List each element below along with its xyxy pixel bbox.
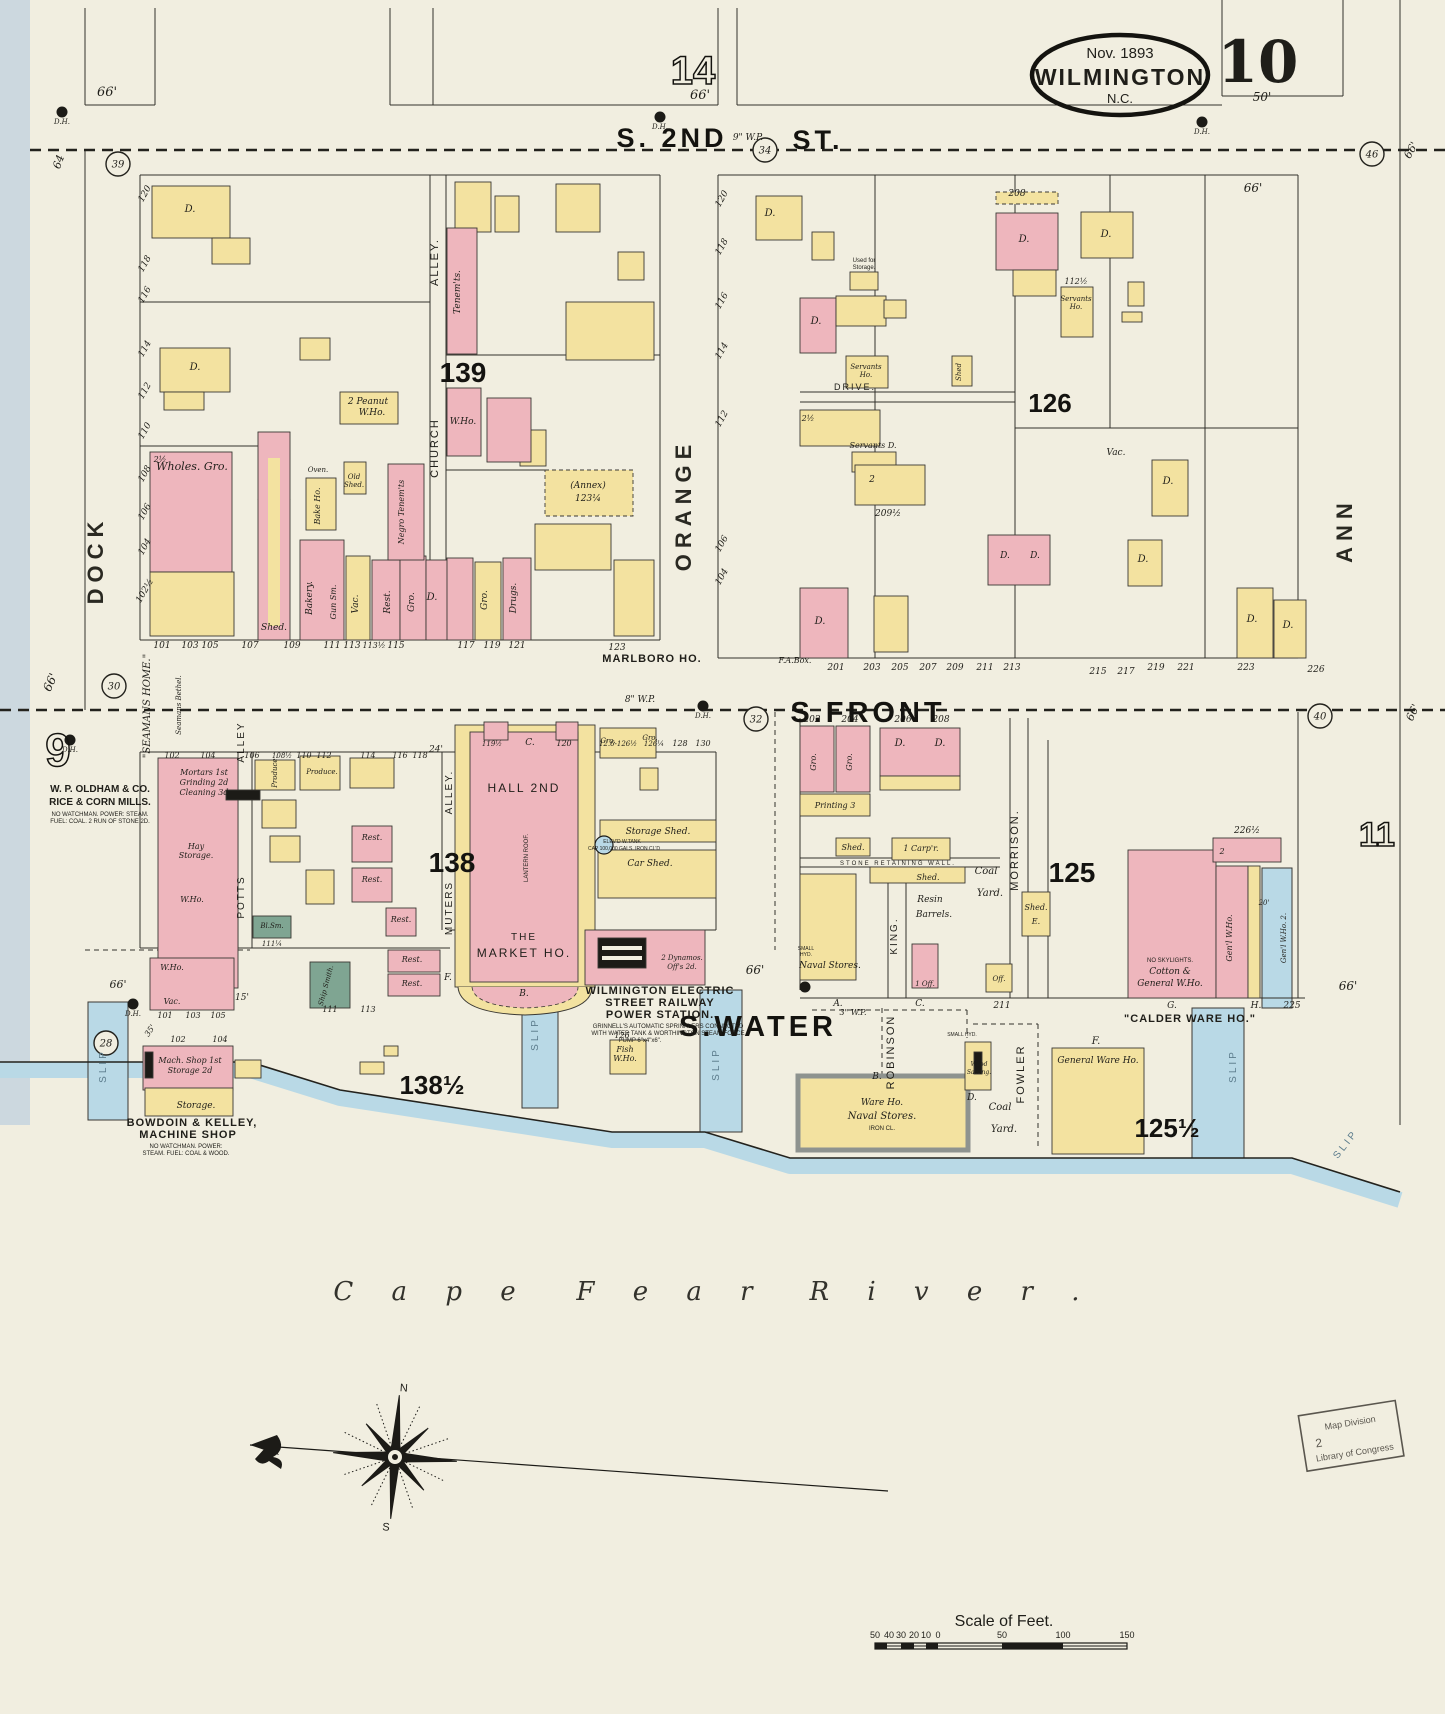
map-label: 206 [893, 715, 911, 725]
map-label: NO WATCHMAN. POWER: STEAM. [52, 812, 149, 818]
map-label: Yard. [977, 888, 1003, 899]
building-footprint [640, 768, 658, 790]
scale-tick-label: 20 [909, 1630, 919, 1640]
map-label: 102 [170, 1035, 185, 1044]
map-label: 11 [1359, 816, 1395, 854]
map-label: Off's 2d. [667, 963, 697, 971]
map-label: 211 [992, 1001, 1010, 1011]
map-label: 226½ [1233, 825, 1260, 836]
map-label: D. [184, 204, 196, 215]
map-label: ELEV'D W.TANK [603, 839, 641, 845]
map-label: SLIP [1228, 1049, 1239, 1083]
map-label: BOWDOIN & KELLEY, [127, 1117, 258, 1129]
map-label: Gun Sm. [329, 585, 338, 620]
map-canvas: S. 2ND ST. S.FRONT S.WATER DOCK ORANGE A… [0, 0, 1445, 1714]
building-footprint [614, 560, 654, 636]
map-label: 116 [392, 751, 407, 760]
map-label: Storage 2d [168, 1066, 213, 1075]
map-label: SLIP [98, 1049, 109, 1083]
map-label: 112 [316, 751, 331, 760]
building-footprint [150, 572, 234, 636]
map-label: Gro. [600, 737, 615, 745]
map-label: 125½ [1134, 1113, 1199, 1143]
building-footprint [268, 458, 280, 626]
map-label: 3" W.P. [840, 1008, 867, 1017]
map-label: ALLEY. [429, 238, 441, 286]
street-label-orange: ORANGE [671, 439, 696, 572]
map-label: D.H. [1193, 128, 1210, 136]
map-label: 202 [802, 715, 820, 725]
circled-number-text: 32 [750, 715, 763, 726]
building-footprint [535, 524, 611, 570]
map-label: 113 [360, 1005, 375, 1014]
map-label: 126 [1028, 388, 1071, 418]
map-label: 139 [440, 357, 487, 388]
map-label: MACHINE SHOP [139, 1129, 237, 1141]
map-label: F.A.Box. [778, 656, 812, 665]
map-label: 105 [201, 641, 218, 651]
map-label: 8" W.P. [625, 695, 655, 705]
map-label: D. [1246, 614, 1258, 625]
map-label: D.H. [53, 118, 70, 126]
map-label: Gen'l W.Ho. 2. [1280, 913, 1288, 963]
map-label: Vac. [1107, 448, 1126, 458]
map-label: Gro. [642, 734, 657, 742]
building-footprint [874, 596, 908, 652]
map-label: Coal [975, 866, 998, 877]
map-label: 123¼ [575, 493, 601, 504]
map-label: Vac. [164, 997, 181, 1006]
building-footprint [1128, 282, 1144, 306]
map-label: 223 [1236, 663, 1254, 673]
map-label: G. [1167, 1001, 1177, 1011]
building-footprint [164, 392, 204, 410]
map-label: Oven. [308, 466, 329, 474]
map-label: 113½ [362, 641, 385, 650]
map-label: 217 [1116, 667, 1134, 677]
map-label: CAP 100,000 GALS. IRON CL'D [588, 846, 660, 852]
map-label: NO SKYLIGHTS. [1147, 958, 1193, 964]
map-label: 123 [608, 643, 625, 653]
scale-title: Scale of Feet. [955, 1613, 1054, 1630]
map-label: Cotton & [1149, 967, 1191, 977]
map-label: D. [814, 616, 826, 627]
map-label: Shed. [841, 843, 864, 852]
map-label: D. [966, 1093, 977, 1103]
map-label: Bakery. [305, 581, 315, 616]
map-label: B. [871, 1072, 882, 1082]
map-label: Gro. [407, 592, 417, 612]
map-label: Rest. [383, 590, 393, 614]
map-label: D. [764, 208, 776, 219]
map-label: (Annex) [570, 480, 606, 491]
map-label: D. [1029, 551, 1040, 561]
map-label: 213 [1002, 663, 1020, 673]
building-footprint [487, 398, 531, 462]
map-label: 110 [296, 751, 311, 760]
building-footprint [350, 758, 394, 788]
hydrant-dot [1197, 117, 1208, 128]
map-label: B. [518, 989, 529, 999]
map-label: D. [1100, 229, 1112, 240]
map-label: D. [1018, 234, 1030, 245]
map-label: 2 [1218, 847, 1224, 856]
map-label: "SEAMANS HOME." [142, 654, 153, 758]
map-label: HALL 2ND [488, 781, 561, 795]
map-label: 2 Dynamos. [660, 954, 703, 962]
map-label: Rest. [401, 979, 423, 988]
map-label: Hay [187, 842, 205, 851]
hydrant-dot [57, 107, 68, 118]
map-label: SLIP [530, 1017, 541, 1051]
map-label: MARLBORO HO. [602, 653, 701, 665]
stamp-state: N.C. [1107, 91, 1133, 106]
map-label: D.H. [61, 746, 78, 754]
map-label: 105 [210, 1011, 225, 1020]
map-label: Shed. [916, 873, 939, 882]
map-label: Naval Stores. [798, 961, 861, 971]
map-label: MORRISON. [1009, 809, 1021, 891]
map-label: Ware Ho. [861, 1098, 903, 1108]
map-label: 66' [109, 978, 126, 991]
map-label: RICE & CORN MILLS. [49, 797, 151, 808]
map-label: W.Ho. [160, 963, 184, 972]
map-label: THE [511, 932, 537, 943]
building-footprint [455, 182, 491, 232]
map-label: FOWLER [1015, 1044, 1027, 1103]
map-label: 215 [1088, 667, 1106, 677]
building-footprint [1122, 312, 1142, 322]
map-label: H. [1250, 1001, 1262, 1011]
river-label-cape: C a p e [333, 1277, 530, 1307]
map-label: 208 [1007, 189, 1025, 199]
map-label: Negro Tenem'ts [397, 480, 406, 545]
map-label: Car Shed. [627, 859, 672, 869]
map-label: 1 Carp'r. [903, 844, 938, 853]
map-label: 121 [508, 641, 525, 651]
map-label: 130 [695, 739, 710, 748]
map-label: 24' [428, 745, 443, 755]
map-label: 221 [1176, 663, 1194, 673]
map-label: Fish [615, 1045, 633, 1054]
circled-number-text: 30 [108, 682, 121, 693]
map-label: D. [810, 316, 822, 327]
building-footprint [1248, 866, 1260, 998]
map-label: Bl.Sm. [259, 922, 283, 930]
map-label: Rest. [361, 833, 383, 842]
map-label: D. [999, 551, 1010, 561]
map-label: MARKET HO. [477, 946, 571, 960]
map-label: 208 [931, 715, 949, 725]
building-footprint [1013, 270, 1056, 296]
map-label: FUEL: COAL. 2 RUN OF STONE 2D. [50, 819, 150, 825]
street-label-ann: ANN [1332, 497, 1357, 563]
scale-tick-label: 100 [1055, 1630, 1070, 1640]
circled-number-text: 39 [112, 160, 125, 171]
scan-left-margin [0, 0, 30, 1125]
map-label: D.H. [694, 712, 711, 720]
street-label-s2nd: S. 2ND [616, 123, 727, 153]
map-label: 205 [890, 663, 908, 673]
river-label-fear: F e a r [575, 1277, 767, 1307]
map-label: 209½ [874, 508, 901, 519]
building-footprint [447, 558, 473, 640]
map-label: Barrels. [915, 910, 952, 920]
map-label: D. [1162, 476, 1174, 487]
building-footprint [566, 302, 654, 360]
map-label: 219 [1146, 663, 1164, 673]
map-label: 15' [235, 993, 249, 1003]
map-label: W.Ho. [180, 895, 204, 904]
building-footprint [235, 1060, 261, 1078]
building-footprint [996, 192, 1058, 204]
map-label: SMALL HYD. [947, 1032, 977, 1038]
map-label: 2½ [153, 455, 167, 464]
map-label: Produce. [305, 768, 338, 776]
map-label: Tenem'ts. [453, 270, 463, 314]
street-label-s2nd-st: ST. [792, 125, 843, 155]
building-footprint [484, 722, 508, 740]
building-footprint [145, 1052, 153, 1078]
map-label: 20' [1258, 899, 1270, 907]
map-label: W.Ho. [450, 417, 477, 427]
map-label: KING. [889, 917, 900, 954]
map-label: Naval Stores. [847, 1111, 917, 1122]
circled-number-text: 34 [759, 146, 772, 157]
map-label: 66' [97, 85, 117, 100]
map-label: 2 Peanut [347, 397, 389, 407]
map-label: D. [1137, 554, 1149, 565]
map-label: 207 [918, 663, 936, 673]
map-label: Shed. [344, 481, 364, 489]
building-footprint [352, 868, 392, 902]
scale-tick-label: 30 [896, 1630, 906, 1640]
map-label: Rest. [401, 955, 423, 964]
map-label: Vac. [351, 594, 361, 613]
map-label: 66' [690, 88, 710, 103]
map-label: Seamans Bethel. [175, 675, 183, 734]
map-label: STEAM. FUEL: COAL & WOOD. [142, 1151, 229, 1157]
map-label: 225 [1282, 1001, 1300, 1011]
map-label: "CALDER WARE HO." [1124, 1013, 1256, 1025]
map-label: 114 [360, 751, 375, 760]
building-footprint [300, 338, 330, 360]
map-label: Cleaning 3d [180, 788, 229, 797]
building-footprint [495, 196, 519, 232]
map-label: Rest. [390, 915, 412, 924]
hydrant-dot [128, 999, 139, 1010]
map-label: Rest. [361, 875, 383, 884]
map-label: GRINNELL'S AUTOMATIC SPRINKLERS CONNECTE… [593, 1024, 744, 1030]
building-footprint [556, 184, 600, 232]
map-label: 101 [157, 1011, 172, 1020]
map-label: Storage. [853, 265, 876, 271]
map-label: W. P. OLDHAM & CO. [50, 784, 150, 795]
map-label: 209 [945, 663, 963, 673]
building-footprint [360, 1062, 384, 1074]
hydrant-dot [698, 701, 709, 712]
circled-number-text: 40 [1313, 712, 1327, 723]
map-label: 109 [283, 641, 300, 651]
building-footprint [556, 722, 578, 740]
building-footprint [1022, 892, 1050, 936]
map-label: General Ware Ho. [1057, 1056, 1138, 1066]
building-footprint [545, 470, 633, 516]
map-label: 50' [1253, 90, 1272, 104]
map-label: 115 [387, 641, 404, 651]
map-label: 107 [241, 641, 258, 651]
map-label: Sawing. [967, 1069, 991, 1076]
map-label: CHURCH [429, 418, 441, 478]
scale-tick-label: 40 [884, 1630, 894, 1640]
map-label: Servants [1060, 295, 1092, 303]
stamp-city: WILMINGTON [1035, 64, 1205, 90]
map-label: POTTS [236, 875, 247, 918]
building-footprint [880, 728, 960, 776]
map-label: 125 [1049, 857, 1096, 888]
map-label: STREET RAILWAY [605, 997, 715, 1009]
map-label: Storage. [179, 851, 214, 860]
map-label: Grinding 2d [180, 778, 229, 787]
map-label: WILMINGTON ELECTRIC [586, 985, 735, 997]
map-label: 9" W.P. [733, 133, 763, 143]
map-label: 112½ [1064, 277, 1087, 286]
building-footprint [352, 826, 392, 862]
building-footprint [836, 296, 886, 326]
map-label: Shed. [261, 623, 287, 633]
compass-south-label: S [382, 1521, 390, 1533]
map-label: Used for [853, 258, 876, 264]
map-label: Resin [916, 895, 943, 905]
map-label: F. [1091, 1036, 1101, 1047]
map-label: D. [1282, 620, 1294, 631]
map-label: Off. [993, 975, 1006, 983]
map-label: 111¼ [262, 940, 282, 948]
map-label: Gro. [809, 753, 818, 770]
map-label: 1 Off. [915, 980, 935, 988]
map-label: 211 [975, 663, 993, 673]
map-label: Shed. [1024, 903, 1047, 912]
map-label: Wholes. Gro. [156, 460, 228, 473]
map-label: D. [894, 738, 906, 749]
building-footprint [306, 870, 334, 904]
scale-tick-label: 50 [870, 1630, 880, 1640]
map-label: 119 [483, 641, 500, 651]
map-label: IRON CL. [869, 1126, 895, 1132]
building-footprint [1152, 460, 1188, 516]
map-label: Bake Ho. [313, 488, 322, 526]
map-label: D. [934, 738, 946, 749]
map-label: ALLEY. [444, 770, 455, 815]
map-label: 2½ [801, 414, 815, 423]
hydrant-dot [655, 112, 666, 123]
map-label: Produce. [271, 756, 279, 789]
map-label: DRIVE. [834, 382, 876, 392]
map-label: STONE RETAINING WALL. [840, 861, 956, 867]
map-label: 138½ [399, 1070, 464, 1100]
sheet-number: 10 [1218, 28, 1299, 96]
map-label: Ho. [859, 371, 872, 379]
map-label: MUTERS [444, 881, 455, 935]
circled-number-text: 28 [99, 1039, 113, 1050]
map-label: 102 [164, 751, 179, 760]
building-footprint [988, 535, 1050, 585]
map-label: W.Ho. [613, 1054, 637, 1063]
scale-tick-label: 10 [921, 1630, 931, 1640]
map-label: Servants D. [849, 441, 896, 450]
map-label: 118 [412, 751, 427, 760]
circled-number-text: 46 [1365, 150, 1379, 161]
building-footprint [598, 850, 716, 898]
stamp-date: Nov. 1893 [1086, 45, 1153, 62]
building-footprint [855, 465, 925, 505]
map-label: D.H. [651, 123, 668, 131]
map-label: C. [915, 999, 925, 1009]
building-footprint [880, 776, 960, 790]
map-label: 128 [672, 739, 687, 748]
map-label: SLIP [711, 1047, 722, 1081]
map-label: 111 [323, 641, 340, 651]
building-footprint [212, 238, 250, 264]
street-label-dock: DOCK [83, 516, 108, 605]
map-label: 119½ [482, 740, 502, 748]
building-footprint [884, 300, 906, 318]
scale-tick-label: 0 [935, 1630, 940, 1640]
building-footprint [812, 232, 834, 260]
building-footprint [262, 800, 296, 828]
map-label: 117 [457, 641, 474, 651]
scale-tick-label: 150 [1119, 1630, 1134, 1640]
map-label: C. [525, 738, 535, 748]
map-label: 201 [826, 663, 844, 673]
map-label: Drugs. [509, 583, 519, 615]
scale-tick-label: 50 [997, 1630, 1007, 1640]
map-label: Gen'l W.Ho. [1225, 914, 1234, 961]
map-label: POWER STATION. [606, 1009, 714, 1021]
map-label: 66' [1244, 181, 1263, 195]
building-footprint [598, 938, 646, 968]
map-label: D. [189, 362, 201, 373]
building-footprint [226, 790, 260, 800]
map-label: General W.Ho. [1137, 979, 1203, 989]
map-label: E. [1031, 917, 1040, 926]
map-label: 104 [200, 751, 215, 760]
map-label: Mortars 1st [179, 768, 228, 777]
map-label: 101 [153, 641, 170, 651]
map-label: 104 [212, 1035, 227, 1044]
map-label: 120 [556, 739, 571, 748]
map-label: Ho. [1069, 303, 1082, 311]
map-label: Coal [989, 1102, 1012, 1113]
map-label: F. [443, 973, 452, 983]
map-label: Wood [971, 1061, 988, 1068]
map-label: 103 [185, 1011, 200, 1020]
map-label: Shed [955, 363, 963, 381]
map-label: D. [426, 592, 438, 603]
map-label: Gro. [845, 753, 854, 770]
map-label: Storage Shed. [626, 827, 691, 837]
building-footprint [618, 252, 644, 280]
map-label: NO WATCHMAN. POWER: [150, 1144, 223, 1150]
map-label: 14 [671, 49, 716, 93]
map-label: Mach. Shop 1st [157, 1056, 222, 1065]
building-footprint [270, 836, 300, 862]
map-label: 226 [1306, 665, 1324, 675]
sanborn-map-page: S. 2ND ST. S.FRONT S.WATER DOCK ORANGE A… [0, 0, 1445, 1714]
map-label: 111 [322, 1005, 337, 1014]
building-footprint [384, 1046, 398, 1056]
map-label: 66' [746, 963, 765, 977]
